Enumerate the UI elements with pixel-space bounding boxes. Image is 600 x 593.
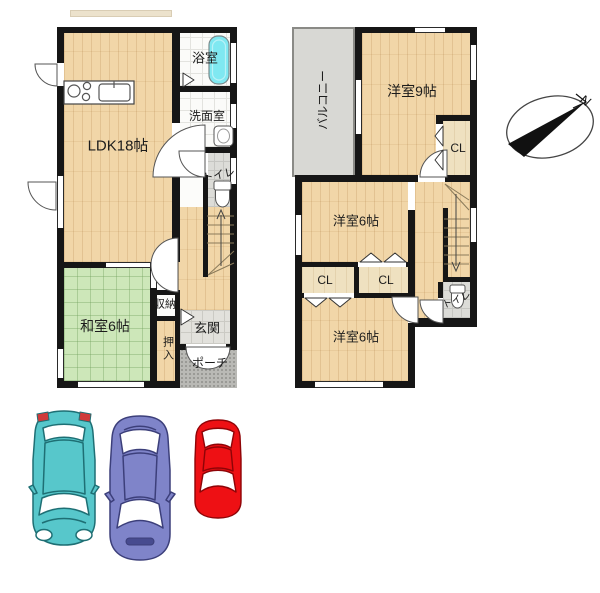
door-opening — [172, 123, 180, 177]
window — [415, 27, 445, 33]
closet-door-opening — [436, 124, 443, 170]
label-ldk: LDK18帖 — [88, 139, 149, 154]
car-red-top-view — [190, 417, 246, 521]
window — [78, 381, 144, 388]
closet-door-opening — [304, 293, 354, 298]
label-closet-right: CL — [378, 274, 393, 286]
window — [230, 43, 237, 83]
wall — [354, 262, 359, 298]
wall — [177, 344, 186, 350]
wall — [443, 277, 477, 282]
wall — [203, 207, 208, 277]
compass-north-indicator: N — [500, 87, 600, 167]
door-opening — [57, 63, 64, 86]
label-bedroom6-upper: 洋室6帖 — [333, 215, 379, 228]
window-to-balcony — [355, 80, 362, 134]
wall — [295, 182, 302, 388]
wall — [438, 282, 443, 298]
hall-1f-mid — [178, 147, 205, 207]
car-purple-top-view — [104, 412, 176, 564]
window — [57, 176, 64, 228]
wall — [408, 210, 415, 297]
door-opening — [408, 297, 415, 323]
car-teal-top-view — [28, 408, 100, 548]
label-closet-main: CL — [450, 142, 465, 154]
stairs-1f-floor — [205, 207, 230, 277]
label-entrance: 玄関 — [194, 322, 220, 335]
wall — [443, 208, 448, 277]
label-closet-left: CL — [317, 274, 332, 286]
wall — [415, 318, 477, 327]
label-bedroom6-lower: 洋室6帖 — [333, 331, 379, 344]
label-oshiire: 押入 — [162, 336, 173, 362]
label-bedroom9: 洋室9帖 — [387, 84, 437, 98]
floor-plan-page: N LDK18帖 浴室 洗面室 トイレ 和室6帖 収納 押入 玄関 ポーチ バル… — [0, 0, 600, 593]
label-bath: 浴室 — [192, 52, 218, 65]
window — [230, 104, 237, 128]
label-washroom: 洗面室 — [189, 110, 225, 122]
window — [470, 208, 477, 242]
window — [57, 349, 64, 378]
entry-door-opening — [186, 344, 226, 350]
sliding-door-opening — [150, 271, 157, 288]
sliding-door-opening — [106, 262, 150, 268]
wall — [57, 27, 237, 33]
door-opening — [408, 184, 415, 210]
wall — [295, 175, 477, 182]
label-porch: ポーチ — [192, 357, 228, 369]
window — [295, 215, 302, 255]
label-storage: 収納 — [154, 300, 176, 311]
wall — [226, 344, 237, 350]
wall — [178, 86, 230, 92]
label-balcony: バルコニー — [317, 70, 329, 130]
roof-eaves-line — [70, 10, 172, 17]
door-opening — [418, 175, 445, 182]
closet-door-opening — [358, 262, 406, 267]
window — [315, 381, 383, 388]
label-japanese-room: 和室6帖 — [80, 319, 130, 333]
compass-n-label: N — [577, 92, 593, 110]
wall — [408, 323, 415, 388]
grille — [126, 538, 154, 545]
window — [470, 45, 477, 80]
